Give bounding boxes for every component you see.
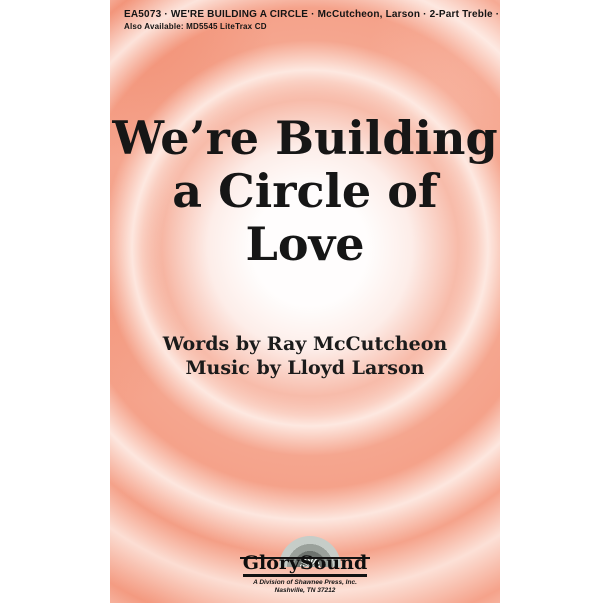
words-credit: Words by Ray McCutcheon	[110, 333, 500, 357]
title-line-3: Love	[110, 218, 500, 271]
credits: Words by Ray McCutcheon Music by Lloyd L…	[110, 333, 500, 380]
page-title: We’re Building a Circle of Love	[110, 112, 500, 271]
music-credit: Music by Lloyd Larson	[110, 357, 500, 381]
product-image-canvas: EA5073 · WE'RE BUILDING A CIRCLE · McCut…	[0, 0, 610, 610]
publisher-address: Nashville, TN 37212	[110, 587, 500, 595]
catalog-line: EA5073 · WE'RE BUILDING A CIRCLE · McCut…	[124, 9, 492, 20]
publisher-wordmark: GlorySound	[243, 554, 367, 573]
publisher-division: A Division of Shawnee Press, Inc.	[110, 579, 500, 587]
publisher-logo: GlorySound A Division of Shawnee Press, …	[110, 536, 500, 595]
title-line-2: a Circle of	[110, 165, 500, 218]
sheet-music-cover: EA5073 · WE'RE BUILDING A CIRCLE · McCut…	[110, 0, 500, 603]
header-strip: EA5073 · WE'RE BUILDING A CIRCLE · McCut…	[124, 9, 492, 31]
publisher-wordmark-box: GlorySound	[241, 554, 369, 577]
wordmark-underline	[243, 574, 367, 577]
availability-line: Also Available: MD5545 LiteTrax CD	[124, 22, 492, 31]
title-line-1: We’re Building	[110, 112, 500, 165]
